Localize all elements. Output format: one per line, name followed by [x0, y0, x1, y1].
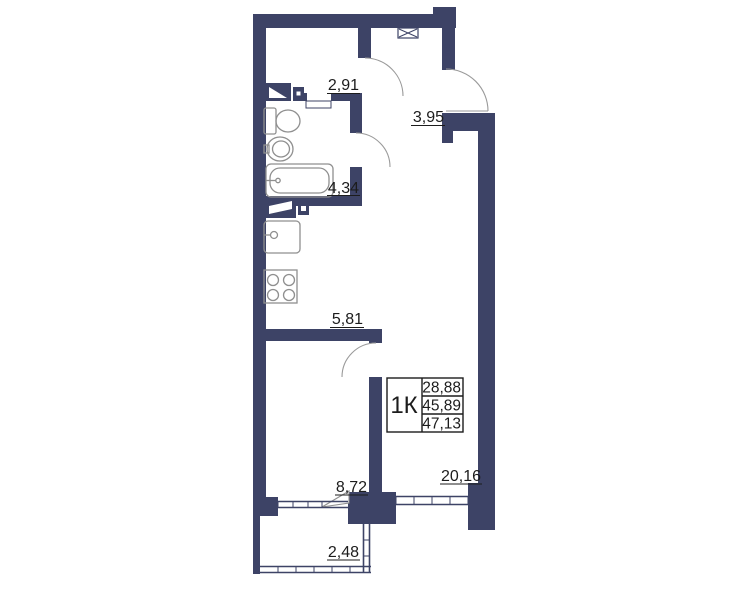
vent-duct-hole	[297, 92, 301, 96]
wall-bottom-right-block	[468, 483, 495, 530]
door-swing-arc-bedroom	[342, 343, 376, 377]
room-area-label-balcony: 2,48	[328, 544, 359, 561]
vent-duct2-hole	[301, 206, 306, 211]
room-area-label-bedroom: 8,72	[336, 479, 367, 496]
vent-shaft-label: 3М	[442, 44, 452, 56]
legend-living-area: 28,88	[422, 380, 461, 397]
balcony-glazing-bottom	[260, 566, 371, 573]
room-area-label-corridor: 3,95	[413, 109, 444, 126]
wall-bathroom-right-upper	[350, 93, 362, 133]
room-labels: 2,91 3,95 4,34 5,81 8,72 20,16 2,48	[327, 77, 482, 561]
door-swing-arc-entrance	[446, 69, 488, 111]
door-leaf-bathroom-hall	[306, 101, 331, 108]
vent-grille-icon	[398, 28, 418, 38]
legend-apartment-type: 1К	[390, 392, 417, 419]
room-area-label-living-room: 20,16	[441, 468, 481, 485]
wall-kitchen-bottom-end-block	[369, 329, 382, 343]
wall-top-right-step	[433, 7, 456, 28]
room-area-label-hallway: 2,91	[328, 77, 359, 94]
sink-icon	[264, 137, 293, 161]
stove-icon	[264, 270, 297, 303]
wall-kitchen-bottom	[253, 329, 376, 341]
floor-plan: 3М	[0, 0, 750, 593]
wall-bottom-left-block	[258, 497, 278, 516]
window-living-room	[396, 496, 468, 505]
balcony-glazing-right	[363, 524, 370, 573]
door-swing-arc-hallway	[365, 58, 403, 96]
legend-total-with-balcony: 47,13	[422, 416, 461, 433]
bathtub-icon	[266, 164, 333, 197]
room-area-label-kitchen: 5,81	[332, 311, 363, 328]
toilet-icon	[264, 108, 300, 134]
wall-top	[253, 14, 435, 28]
room-area-label-bathroom: 4,34	[328, 180, 359, 197]
kitchen-fixtures	[264, 221, 300, 303]
bathroom-fixtures	[264, 108, 333, 197]
wall-left-lower-thin	[253, 516, 260, 574]
wall-room-divider	[369, 377, 382, 497]
wall-hallway-right	[358, 28, 371, 58]
wall-right-main	[478, 130, 495, 483]
wall-left	[253, 14, 266, 516]
kitchen-sink-icon	[264, 221, 300, 253]
wall-bottom-middle-block	[348, 492, 396, 524]
floor-plan-page: 3М	[0, 0, 750, 593]
legend-table: 1К 28,88 45,89 47,13	[387, 378, 463, 433]
legend-total-area: 45,89	[422, 398, 461, 415]
door-swing-arc-bathroom	[356, 133, 390, 167]
